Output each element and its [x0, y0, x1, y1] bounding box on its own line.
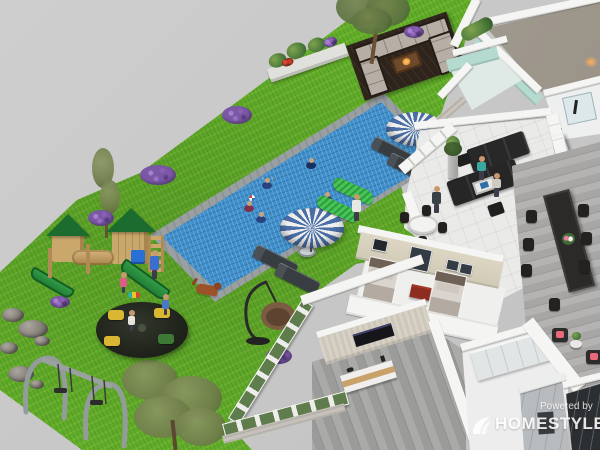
swimmer [262, 182, 272, 189]
lavender-bush [222, 106, 252, 124]
watermark-powered-by: Powered by [540, 401, 593, 412]
toys [128, 292, 140, 298]
armchair-pink [586, 350, 600, 364]
black-chair [422, 205, 431, 216]
watermark-brand: HOMESTYLER [495, 414, 600, 434]
swimmer [244, 205, 254, 212]
ride-seat-green [158, 334, 174, 344]
ride-hub [138, 324, 146, 332]
dining-chair [581, 232, 592, 245]
table-plant [572, 332, 581, 340]
wall-art-small [459, 262, 474, 275]
dining-chair [579, 260, 590, 273]
floorplan-render: Powered by HOMESTYLER [0, 0, 600, 450]
girl-pink [120, 278, 127, 287]
kids-chair-blue [131, 250, 145, 262]
person-on-sofa [492, 179, 501, 188]
plant-side-table [570, 340, 582, 348]
play-tower-roof [106, 208, 156, 232]
fire-flame [401, 57, 411, 66]
fire-pit-table [391, 50, 423, 74]
play-post [86, 244, 90, 274]
child-on-ride [128, 316, 135, 325]
flower-centerpiece [561, 231, 577, 246]
wall-art-small [372, 238, 389, 253]
swimmer [256, 216, 266, 223]
dining-chair [523, 238, 534, 251]
woman-standing [432, 192, 441, 204]
garden-tree [176, 408, 226, 446]
rock [0, 342, 18, 354]
fireplace-glow [584, 56, 598, 68]
child-on-ride [162, 300, 169, 309]
sectional-sofa-left [358, 55, 390, 98]
man-standing [352, 200, 361, 212]
dining-chair [578, 204, 589, 217]
ride-seat-yellow [154, 308, 170, 318]
pool-ball [249, 195, 255, 201]
swimmer [306, 162, 316, 169]
dining-chair [549, 298, 560, 311]
merry-go-round [96, 302, 188, 358]
dining-chair [521, 264, 532, 277]
armchair-pink [552, 328, 568, 342]
ride-seat-yellow [104, 336, 120, 346]
lavender-bush [404, 26, 424, 38]
black-chair [400, 212, 409, 223]
game-controller [346, 367, 354, 373]
person-on-sofa [477, 162, 486, 171]
play-tower-roof [46, 214, 90, 236]
play-post [48, 248, 52, 278]
statue-plant [444, 142, 462, 156]
tv [353, 323, 395, 347]
adult-kneeling [150, 256, 159, 270]
black-chair [438, 222, 447, 233]
dining-chair [526, 210, 537, 223]
wall-art-small [445, 259, 460, 272]
tree-canopy [352, 8, 392, 34]
round-table [408, 215, 438, 234]
table-tray [480, 181, 490, 189]
lavender-bush [140, 165, 176, 185]
ride-seat-yellow [108, 310, 124, 320]
play-tunnel [72, 250, 114, 265]
homestyler-logo-icon [470, 414, 492, 436]
